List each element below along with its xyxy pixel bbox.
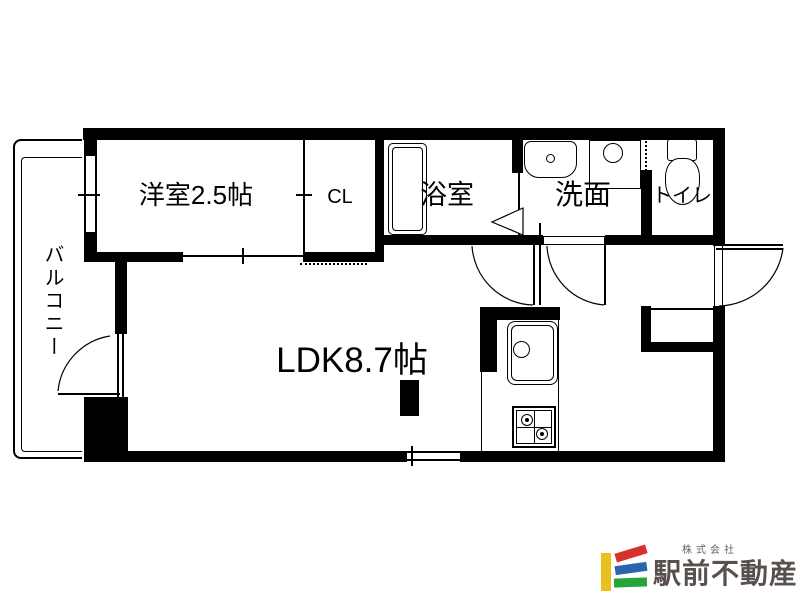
wall-right-upper: [713, 128, 725, 246]
balcony-door-frame-1: [117, 334, 119, 397]
wall-right-lower: [713, 306, 725, 462]
wall-westernroom-bottom: [84, 252, 183, 262]
logo-blue-stripe: [615, 562, 648, 575]
bottom-window-line-1: [407, 451, 460, 453]
stove-burner-dot-2: [540, 432, 544, 436]
ldk-door1-swing-arc: [472, 246, 533, 305]
bath-door-panel-line: [518, 173, 520, 235]
boundary-tick: [242, 248, 244, 264]
ldk-door2-leaf: [604, 244, 606, 305]
entrance-door-swing-arc: [719, 248, 783, 306]
wall-closet-bottom: [303, 252, 377, 262]
logo-green-stripe: [614, 577, 647, 587]
floor-plan-canvas: バルコニー 洋室2.5帖 CL 浴室 洗面 トイレ LDK8.7帖 株式会社 駅…: [0, 0, 800, 600]
westernroom-window-tick: [78, 194, 100, 196]
wash-basin-faucet-icon: [546, 154, 555, 163]
logo-company-name: 駅前不動産: [653, 552, 800, 592]
bottom-window-tick: [411, 446, 413, 466]
kitchen-counter-side-stub: [480, 307, 497, 372]
wall-ldk-north-west: [375, 235, 543, 245]
washroom-toilet-dotted-door: [645, 141, 647, 171]
ldk-door1-leaf: [533, 244, 535, 305]
closet-partition-tick: [296, 194, 312, 196]
wall-bottom-pillar: [400, 380, 419, 416]
ldk-door2-swing-arc: [547, 246, 604, 305]
bottom-window-line-2: [407, 459, 460, 461]
toilet-label: トイレ: [650, 179, 714, 208]
closet-partition-line: [303, 140, 305, 252]
balcony-label: バルコニー: [38, 226, 67, 376]
logo-yellow-bar: [601, 553, 611, 591]
entrance-door-leaf-top: [716, 244, 783, 246]
balcony-door-frame-2: [122, 334, 124, 397]
ldk-label: LDK8.7帖: [253, 332, 451, 383]
wall-southwest-block: [84, 397, 128, 457]
entrance-opening-edge-1: [714, 245, 715, 306]
wall-bath-washroom-divider: [512, 128, 523, 173]
wall-bottom-right: [460, 451, 725, 462]
western-room-label: 洋室2.5帖: [106, 175, 286, 212]
wall-ldk-west-column: [115, 262, 127, 334]
bathroom-label: 浴室: [411, 173, 483, 212]
genkan-step-line: [650, 308, 713, 310]
ldk-door1-frame: [539, 244, 541, 305]
washing-machine-drain-icon: [603, 143, 623, 163]
washroom-label: 洗面: [545, 173, 621, 213]
wall-left-top: [84, 128, 97, 156]
company-logo: 株式会社 駅前不動産: [595, 535, 800, 595]
wall-genkan-bottom: [641, 342, 725, 352]
entrance-opening-edge-2: [722, 245, 723, 306]
ldk-door2-closed-panel: [543, 236, 605, 245]
closet-label: CL: [322, 186, 358, 209]
gas-stove-grid-h: [516, 427, 552, 428]
kitchen-faucet-icon: [513, 341, 530, 358]
wall-top: [83, 128, 725, 140]
balcony-door-leaf: [58, 393, 120, 395]
logo-red-stripe: [614, 545, 647, 563]
closet-door-dotted-line: [300, 263, 367, 265]
washroom-tick: [539, 223, 541, 237]
wall-ldk-north-east: [605, 235, 725, 245]
entrance-door-leaf-bottom: [716, 248, 783, 250]
wall-bottom-left: [84, 451, 407, 462]
stove-burner-dot-1: [525, 418, 529, 422]
